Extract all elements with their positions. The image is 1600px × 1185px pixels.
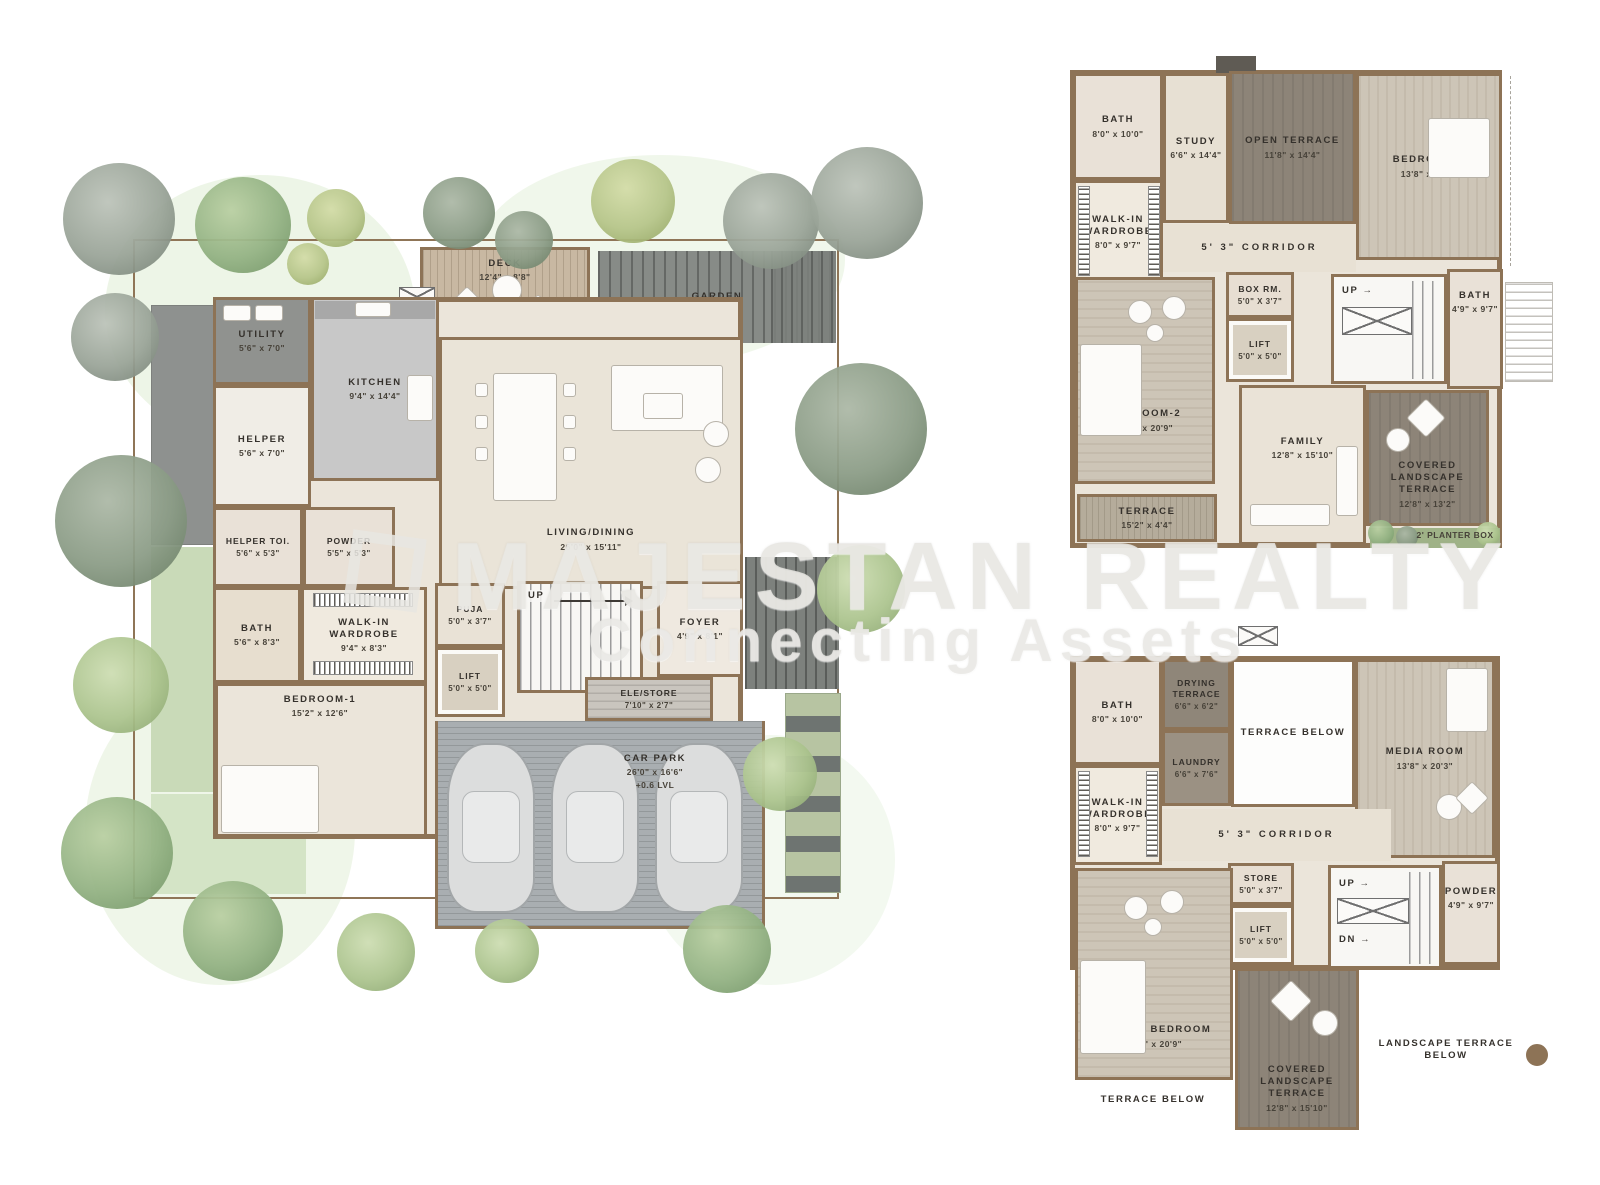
corridor: 5' 3" CORRIDOR xyxy=(1163,224,1356,272)
terrace-below-label: TERRACE BELOW xyxy=(1068,1094,1238,1106)
room-terrace: TERRACE 15'2" x 4'4" xyxy=(1077,494,1217,542)
room-dims: 5'6" x 8'3" xyxy=(234,637,280,647)
wardrobe-unit xyxy=(1146,771,1158,857)
room-label: BATH xyxy=(1101,700,1133,712)
room-lift: LIFT 5'0" x 5'0" xyxy=(435,647,505,717)
room-label: MEDIA ROOM xyxy=(1386,746,1464,758)
tree-icon xyxy=(811,147,923,259)
tree-icon xyxy=(71,293,159,381)
room-label: COVERED LANDSCAPE TERRACE xyxy=(1238,1064,1356,1101)
room-dims: 26'0" x 16'6" xyxy=(627,767,683,777)
daybed xyxy=(1446,668,1488,732)
room-label: LANDSCAPE TERRACE BELOW xyxy=(1366,1038,1526,1063)
room-dims: 5'0" x 5'0" xyxy=(448,684,492,694)
wardrobe-unit xyxy=(1078,186,1090,276)
bed xyxy=(1428,118,1490,178)
staircase: UP → DN → xyxy=(1328,865,1442,969)
room-dims: 4'9" x 9'7" xyxy=(1452,304,1498,314)
tree-icon xyxy=(591,159,675,243)
dining-chair xyxy=(475,447,488,461)
room-ele-store: ELE/STORE 7'10" x 2'7" xyxy=(585,677,713,721)
second-floor-plan: BATH 8'0" x 10'0" DRYING TERRACE 6'6" x … xyxy=(1028,618,1553,1163)
room-study: STUDY 6'6" x 14'4" xyxy=(1163,73,1229,223)
landscape-terrace-below-label: LANDSCAPE TERRACE BELOW xyxy=(1366,1038,1526,1063)
room-label: TERRACE BELOW xyxy=(1241,727,1346,739)
armchair xyxy=(703,421,729,447)
room-label: LAUNDRY xyxy=(1172,757,1220,768)
tree-icon xyxy=(683,905,771,993)
floorplan-sheet: { "watermark": { "brand": "MAJESTAN REAL… xyxy=(0,0,1600,1185)
dining-chair xyxy=(563,415,576,429)
room-dims: 8'0" x 10'0" xyxy=(1092,714,1143,724)
tree-icon xyxy=(183,881,283,981)
corridor-label: 5' 3" CORRIDOR xyxy=(1218,829,1334,841)
room-label: BOX RM. xyxy=(1238,284,1281,295)
wardrobe-unit xyxy=(313,661,413,675)
stair-treads xyxy=(1412,281,1442,379)
room-label: BATH xyxy=(1102,114,1134,126)
stairwell-void xyxy=(1342,307,1412,335)
dining-chair xyxy=(563,383,576,397)
tree-icon xyxy=(63,163,175,275)
staircase: UP → xyxy=(1331,274,1447,384)
room-dims: 12'8" x 15'10" xyxy=(1272,450,1334,460)
planter-box-label: 2' PLANTER BOX xyxy=(1400,530,1510,540)
room-store: STORE 5'0" x 3'7" xyxy=(1228,863,1294,905)
tree-icon xyxy=(723,173,819,269)
room-label: LIVING/DINING xyxy=(547,527,635,539)
room-dims: 15'2" x 4'4" xyxy=(1121,520,1172,530)
dining-chair xyxy=(475,415,488,429)
armchair xyxy=(1124,896,1148,920)
room-dims: 5'6" x 7'0" xyxy=(239,448,285,458)
armchair xyxy=(1162,296,1186,320)
stairwell-void xyxy=(1337,898,1409,924)
room-dims: 9'4" x 14'4" xyxy=(349,391,400,401)
car-roof xyxy=(566,791,624,863)
armchair xyxy=(1128,300,1152,324)
car-roof xyxy=(462,791,520,863)
room-open-terrace: OPEN TERRACE 11'8" x 14'4" xyxy=(1229,71,1356,224)
room-dims: 5'5" x 5'3" xyxy=(327,549,371,559)
room-label: TERRACE BELOW xyxy=(1101,1094,1206,1106)
ground-floor-plan: DECK 12'4" x 8'8" GARDEN UTILITY 5'6" x … xyxy=(55,125,870,1040)
room-puja: PUJA 5'0" x 3'7" xyxy=(435,583,505,647)
wardrobe-unit xyxy=(1148,186,1160,276)
room-label: KITCHEN xyxy=(348,377,401,389)
room-dims: 5'0" x 3'7" xyxy=(1239,886,1283,896)
tree-icon xyxy=(495,211,553,269)
armchair xyxy=(1160,890,1184,914)
room-laundry: LAUNDRY 6'6" x 7'6" xyxy=(1162,730,1231,806)
bed xyxy=(221,765,319,833)
room-foyer: FOYER 4'9" x 8'1" xyxy=(657,581,743,677)
tree-icon xyxy=(307,189,365,247)
car-roof xyxy=(670,791,728,863)
room-helper: HELPER 5'6" x 7'0" xyxy=(213,385,311,507)
room-powder: POWDER 4'9" x 9'7" xyxy=(1442,861,1500,965)
dining-chair xyxy=(475,383,488,397)
terrace-below-area: TERRACE BELOW xyxy=(1231,659,1355,807)
room-dims: 6'6" x 7'6" xyxy=(1175,770,1219,780)
dining-table xyxy=(493,373,557,501)
utility-sink xyxy=(255,305,283,321)
room-dims: 4'9" x 8'1" xyxy=(677,631,723,641)
coffee-table xyxy=(643,393,683,419)
stair-treads xyxy=(1409,872,1437,964)
sofa xyxy=(1336,446,1358,516)
room-dims: 5'0" x 3'7" xyxy=(448,617,492,627)
tree-icon xyxy=(423,177,495,249)
room-label: HELPER xyxy=(238,434,286,446)
room-label: STORE xyxy=(1244,873,1278,884)
room-dims: 4'9" x 9'7" xyxy=(1448,900,1494,910)
car xyxy=(447,743,535,913)
tree-icon xyxy=(73,637,169,733)
stair-direction-arrow xyxy=(554,600,626,602)
stairs-up-label: UP → xyxy=(1342,285,1374,297)
room-box-rm: BOX RM. 5'0" X 3'7" xyxy=(1226,272,1294,318)
room-label: UTILITY xyxy=(238,329,285,341)
room-dims: 5'0" x 5'0" xyxy=(1239,937,1283,947)
room-lift: LIFT 5'0" x 5'0" xyxy=(1226,318,1294,382)
balcony-hatch xyxy=(1505,282,1553,382)
armchair xyxy=(695,457,721,483)
room-dims: 13'8" x 20'3" xyxy=(1397,761,1453,771)
room-label: BATH xyxy=(241,623,273,635)
room-powder: POWDER 5'5" x 5'3" xyxy=(303,507,395,587)
room-label: PUJA xyxy=(457,604,484,615)
room-dims: 6'6" x 14'4" xyxy=(1170,150,1221,160)
bed xyxy=(1080,960,1146,1054)
wardrobe-unit xyxy=(1078,771,1090,857)
porch-box xyxy=(1238,626,1278,646)
sofa xyxy=(1250,504,1330,526)
utility-sink xyxy=(223,305,251,321)
tree-icon xyxy=(195,177,291,273)
tree-icon xyxy=(55,455,187,587)
first-floor-plan: BATH 8'0" x 10'0" STUDY 6'6" x 14'4" OPE… xyxy=(1040,52,1560,577)
room-label: CAR PARK xyxy=(624,753,686,765)
room-label: POWDER xyxy=(327,536,371,547)
room-label: LIFT xyxy=(1249,339,1271,350)
tree-icon xyxy=(61,797,173,909)
room-bath: BATH 5'6" x 8'3" xyxy=(213,587,301,683)
room-dims: 7'10" x 2'7" xyxy=(625,701,674,711)
stairs-dn-label: DN → xyxy=(1339,934,1371,946)
stairs-up-label: UP xyxy=(526,590,546,602)
tree-icon xyxy=(743,737,817,811)
room-drying-terrace: DRYING TERRACE 6'6" x 6'2" xyxy=(1162,659,1231,730)
shrub-icon xyxy=(1368,520,1394,546)
room-label: ELE/STORE xyxy=(620,688,677,699)
tree-icon xyxy=(817,545,905,633)
lounge-table xyxy=(1386,428,1410,452)
room-label: LIFT xyxy=(459,671,481,682)
lounge-table xyxy=(1312,1010,1338,1036)
room-bath: BATH 8'0" x 10'0" xyxy=(1073,73,1163,180)
room-label: WALK-IN WARDROBE xyxy=(304,617,424,642)
side-table xyxy=(1146,324,1164,342)
room-label: HELPER TOI. xyxy=(226,536,290,547)
room-dims: 5'0" x 5'0" xyxy=(1238,352,1282,362)
car-park-label: CAR PARK 26'0" x 16'6" +0.6 LVL xyxy=(565,753,745,790)
room-dims: 26'0" x 15'11" xyxy=(560,542,621,552)
tree-icon xyxy=(795,363,927,495)
room-dims: 6'6" x 6'2" xyxy=(1175,702,1219,712)
room-dims: 8'0" x 9'7" xyxy=(1095,823,1141,833)
room-label: BATH xyxy=(1459,290,1491,302)
room-dims: 11'8" x 14'4" xyxy=(1265,150,1321,160)
tree-icon xyxy=(475,919,539,983)
planter-pot xyxy=(1526,1044,1548,1066)
room-label: OPEN TERRACE xyxy=(1245,135,1340,147)
room-dims: 12'8" x 15'10" xyxy=(1266,1103,1328,1113)
bed xyxy=(1080,344,1142,436)
room-dims: 8'0" x 9'7" xyxy=(1095,240,1141,250)
room-dims: 8'0" x 10'0" xyxy=(1092,129,1143,139)
room-dims: 12'8" x 13'2" xyxy=(1399,499,1455,509)
room-level-note: +0.6 LVL xyxy=(636,780,675,790)
corridor-label: 5' 3" CORRIDOR xyxy=(1201,242,1317,254)
kitchen-sink xyxy=(355,302,391,317)
room-label: POWDER xyxy=(1445,886,1497,898)
room-label: DRYING TERRACE xyxy=(1165,678,1228,700)
tree-icon xyxy=(287,243,329,285)
wardrobe-unit xyxy=(313,593,413,607)
room-lift: LIFT 5'0" x 5'0" xyxy=(1228,905,1294,965)
tree-icon xyxy=(337,913,415,991)
room-bath2: BATH 4'9" x 9'7" xyxy=(1447,269,1503,389)
side-table xyxy=(1144,918,1162,936)
dining-chair xyxy=(563,447,576,461)
room-dims: 5'6" x 7'0" xyxy=(239,343,285,353)
stairs-up-label: UP → xyxy=(1339,878,1371,890)
room-label: 2' PLANTER BOX xyxy=(1416,530,1493,540)
roof-overhang-line xyxy=(1510,76,1511,266)
room-dims: 5'6" x 5'3" xyxy=(236,549,280,559)
room-helper-toi: HELPER TOI. 5'6" x 5'3" xyxy=(213,507,303,587)
room-label: COVERED LANDSCAPE TERRACE xyxy=(1369,460,1486,497)
room-dims: 15'2" x 12'6" xyxy=(292,708,348,718)
room-label: FOYER xyxy=(680,617,721,629)
room-label: LIFT xyxy=(1250,924,1272,935)
stove-icon xyxy=(407,375,433,421)
room-label: TERRACE xyxy=(1118,506,1175,518)
room-label: STUDY xyxy=(1176,136,1216,148)
room-dims: 5'0" X 3'7" xyxy=(1238,297,1282,307)
room-label: FAMILY xyxy=(1281,436,1325,448)
room-bath: BATH 8'0" x 10'0" xyxy=(1073,659,1162,765)
room-dims: 9'4" x 8'3" xyxy=(341,643,387,653)
corridor: 5' 3" CORRIDOR xyxy=(1162,809,1391,861)
room-label: BEDROOM-1 xyxy=(284,694,356,706)
